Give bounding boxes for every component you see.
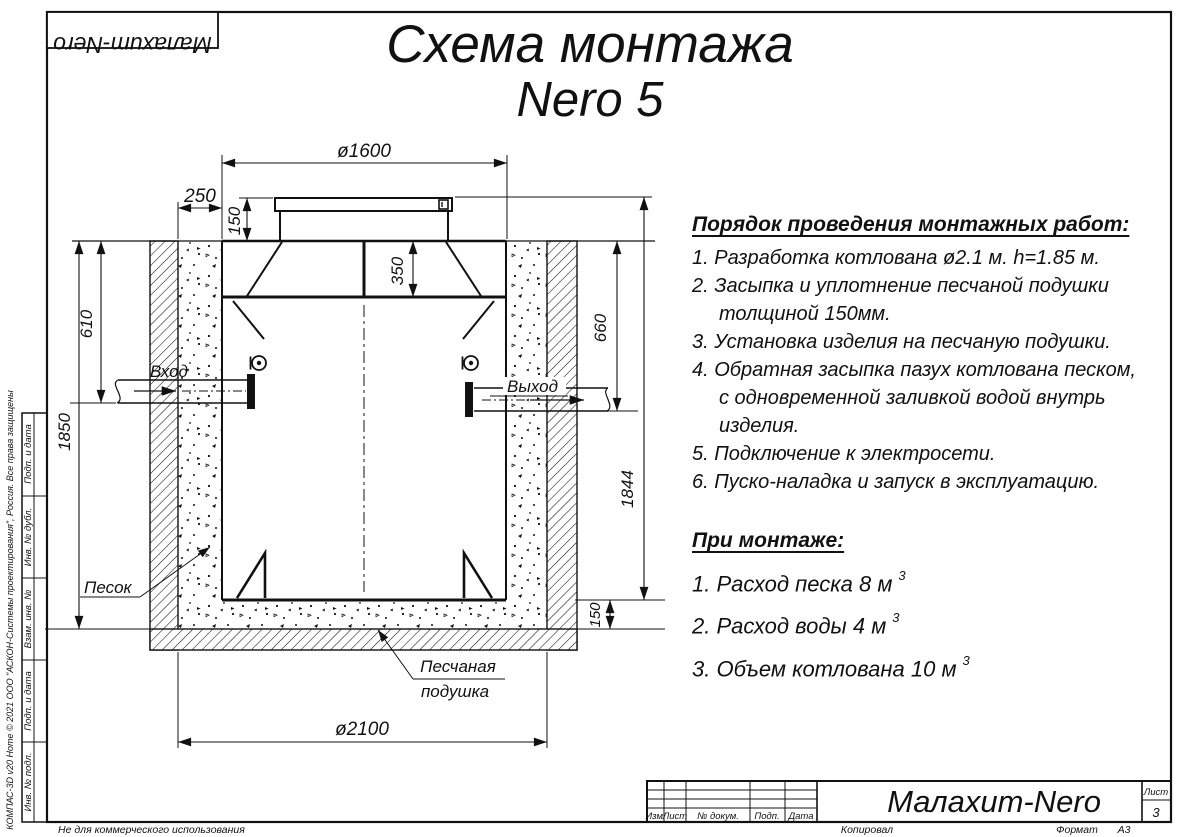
inlet-coupling — [247, 374, 255, 409]
sand-cushion — [222, 600, 506, 629]
clamp-right — [463, 356, 479, 370]
installation-step: 3. Установка изделия на песчаную подушки… — [692, 328, 1180, 356]
cushion-label-line2: подушка — [421, 682, 489, 701]
titleblock-col-list: Лист — [662, 811, 688, 822]
dim-pit-depth: 1850 — [55, 413, 74, 451]
stamp-cell-label: Подп. и дата — [23, 671, 34, 730]
logo-text: Малахит-Nero — [53, 32, 212, 58]
copied-by-label: Копировал — [841, 824, 893, 836]
cad-copyright: КОМПАС-3D v20 Home © 2021 ООО "АСКОН-Сис… — [5, 390, 15, 830]
tank-section-drawing: Вход Выход — [45, 141, 665, 748]
stamp-cell-label: Инв. № подл. — [23, 753, 34, 812]
montage-item: 3. Объем котлована 10 м3 — [692, 645, 1180, 687]
format-value: А3 — [1117, 824, 1131, 836]
pipe-break-symbol — [606, 388, 610, 411]
inlet-label: Вход — [150, 362, 188, 381]
tank-neck-and-lid — [275, 198, 452, 241]
format-label: Формат — [1056, 824, 1098, 836]
montage-item-sup: 3 — [898, 568, 905, 583]
pit-bottom — [150, 629, 577, 650]
drawing-title-line1: Схема монтажа — [355, 16, 825, 74]
logo-box: Малахит-Nero — [47, 12, 218, 58]
outlet-coupling — [465, 382, 473, 417]
installation-steps-block: Порядок проведения монтажных работ: 1. Р… — [692, 210, 1180, 496]
stamp-cell-label: Подп. и дата — [23, 424, 34, 483]
stamp-cell-label: Взам. инв. № — [23, 590, 34, 649]
dim-backfill-width: 250 — [183, 186, 216, 207]
sheet-number: 3 — [1152, 805, 1160, 820]
montage-item-text: 1. Расход песка 8 м — [692, 571, 892, 596]
cushion-label-line1: Песчаная — [420, 657, 496, 676]
tank-body — [222, 241, 506, 600]
drawing-title-line2: Nero 5 — [355, 74, 825, 126]
installation-step: 2. Засыпка и уплотнение песчаной подушки… — [692, 272, 1180, 328]
titleblock-col-dokum: № докум. — [697, 811, 739, 822]
dim-neck-depth: 350 — [388, 256, 407, 285]
pit-wall-left — [150, 241, 178, 650]
dim-pit-diameter: ø2100 — [335, 719, 389, 740]
montage-item-sup: 3 — [963, 653, 970, 668]
montage-item-sup: 3 — [892, 610, 899, 625]
dim-lid-height: 150 — [225, 206, 244, 235]
company-name: Малахит-Nero — [887, 784, 1101, 819]
sheet-label: Лист — [1143, 787, 1169, 798]
installation-step: 1. Разработка котлована ø2.1 м. h=1.85 м… — [692, 244, 1180, 272]
sand-backfill-right — [506, 241, 547, 629]
sand-label: Песок — [84, 578, 133, 597]
pit-wall-right — [547, 241, 577, 650]
dim-top-diameter: ø1600 — [337, 141, 391, 162]
pipe-break-symbol — [115, 380, 120, 403]
installation-step: 4. Обратная засыпка пазух котлована песк… — [692, 356, 1180, 440]
dim-tank-height: 1844 — [618, 470, 637, 508]
dim-cushion-height: 150 — [587, 602, 604, 628]
clamp-left — [251, 356, 267, 370]
outlet-label: Выход — [507, 377, 558, 396]
montage-item: 2. Расход воды 4 м3 — [692, 602, 1180, 644]
montage-item-text: 3. Объем котлована 10 м — [692, 656, 957, 681]
montage-heading: При монтаже: — [692, 526, 1180, 556]
stamp-cell-label: Инв. № дубл. — [23, 508, 34, 566]
montage-item: 1. Расход песка 8 м3 — [692, 560, 1180, 602]
montage-item-text: 2. Расход воды 4 м — [692, 614, 886, 639]
drawing-title: Схема монтажа Nero 5 — [355, 16, 825, 126]
installation-step: 5. Подключение к электросети. — [692, 440, 1180, 468]
non-commercial-notice: Не для коммерческого использования — [58, 824, 245, 836]
montage-block: При монтаже: 1. Расход песка 8 м3 2. Рас… — [692, 526, 1180, 687]
sand-backfill-left — [178, 241, 222, 629]
drawing-sheet: Малахит-Nero Подп. и дата Инв. № дубл. В… — [0, 0, 1184, 837]
installation-step: 6. Пуско-наладка и запуск в эксплуатацию… — [692, 468, 1180, 496]
dim-outlet-depth: 660 — [591, 313, 610, 342]
lid — [275, 198, 452, 211]
installation-steps-heading: Порядок проведения монтажных работ: — [692, 210, 1180, 240]
titleblock-col-data: Дата — [787, 811, 813, 822]
titleblock-col-podp: Подп. — [754, 811, 779, 822]
dim-inlet-depth: 610 — [77, 309, 96, 338]
